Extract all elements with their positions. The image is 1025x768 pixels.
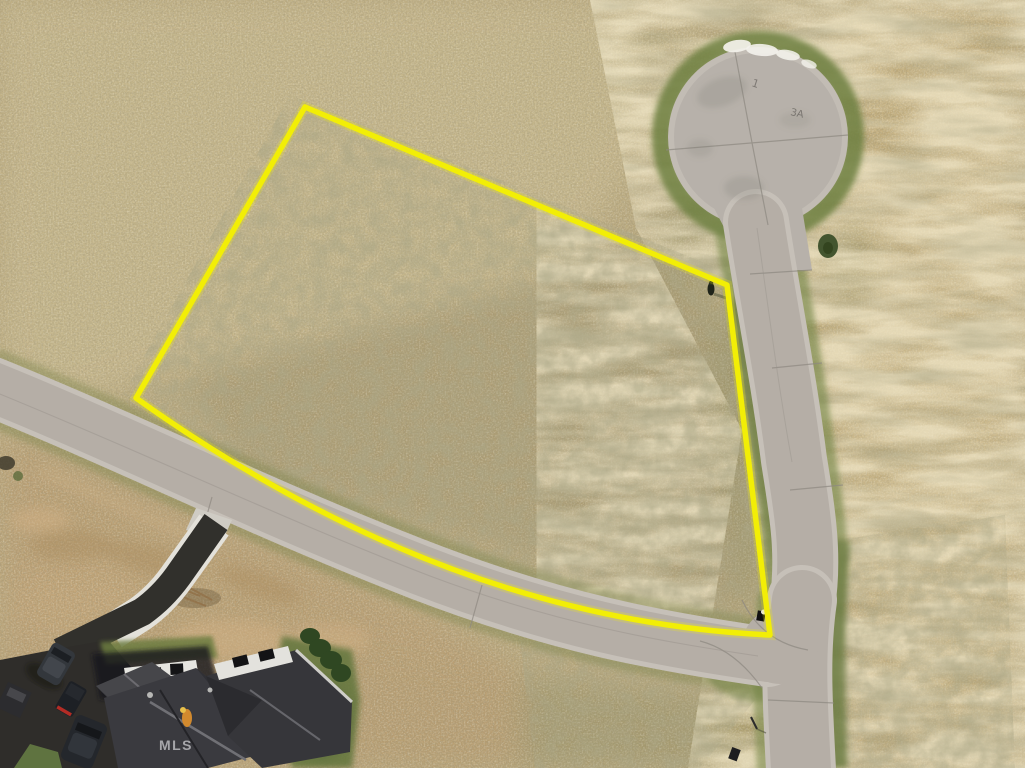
roof-vent: [147, 692, 153, 698]
small-shrub: [13, 471, 23, 481]
aerial-photo-canvas: 3A 1: [0, 0, 1025, 768]
house-under-construction: MLS: [92, 646, 352, 768]
mls-watermark: MLS: [159, 737, 193, 753]
aerial-photo: 3A 1: [0, 0, 1025, 768]
shrub-by-road: [818, 234, 838, 258]
roof-vent: [208, 688, 213, 693]
